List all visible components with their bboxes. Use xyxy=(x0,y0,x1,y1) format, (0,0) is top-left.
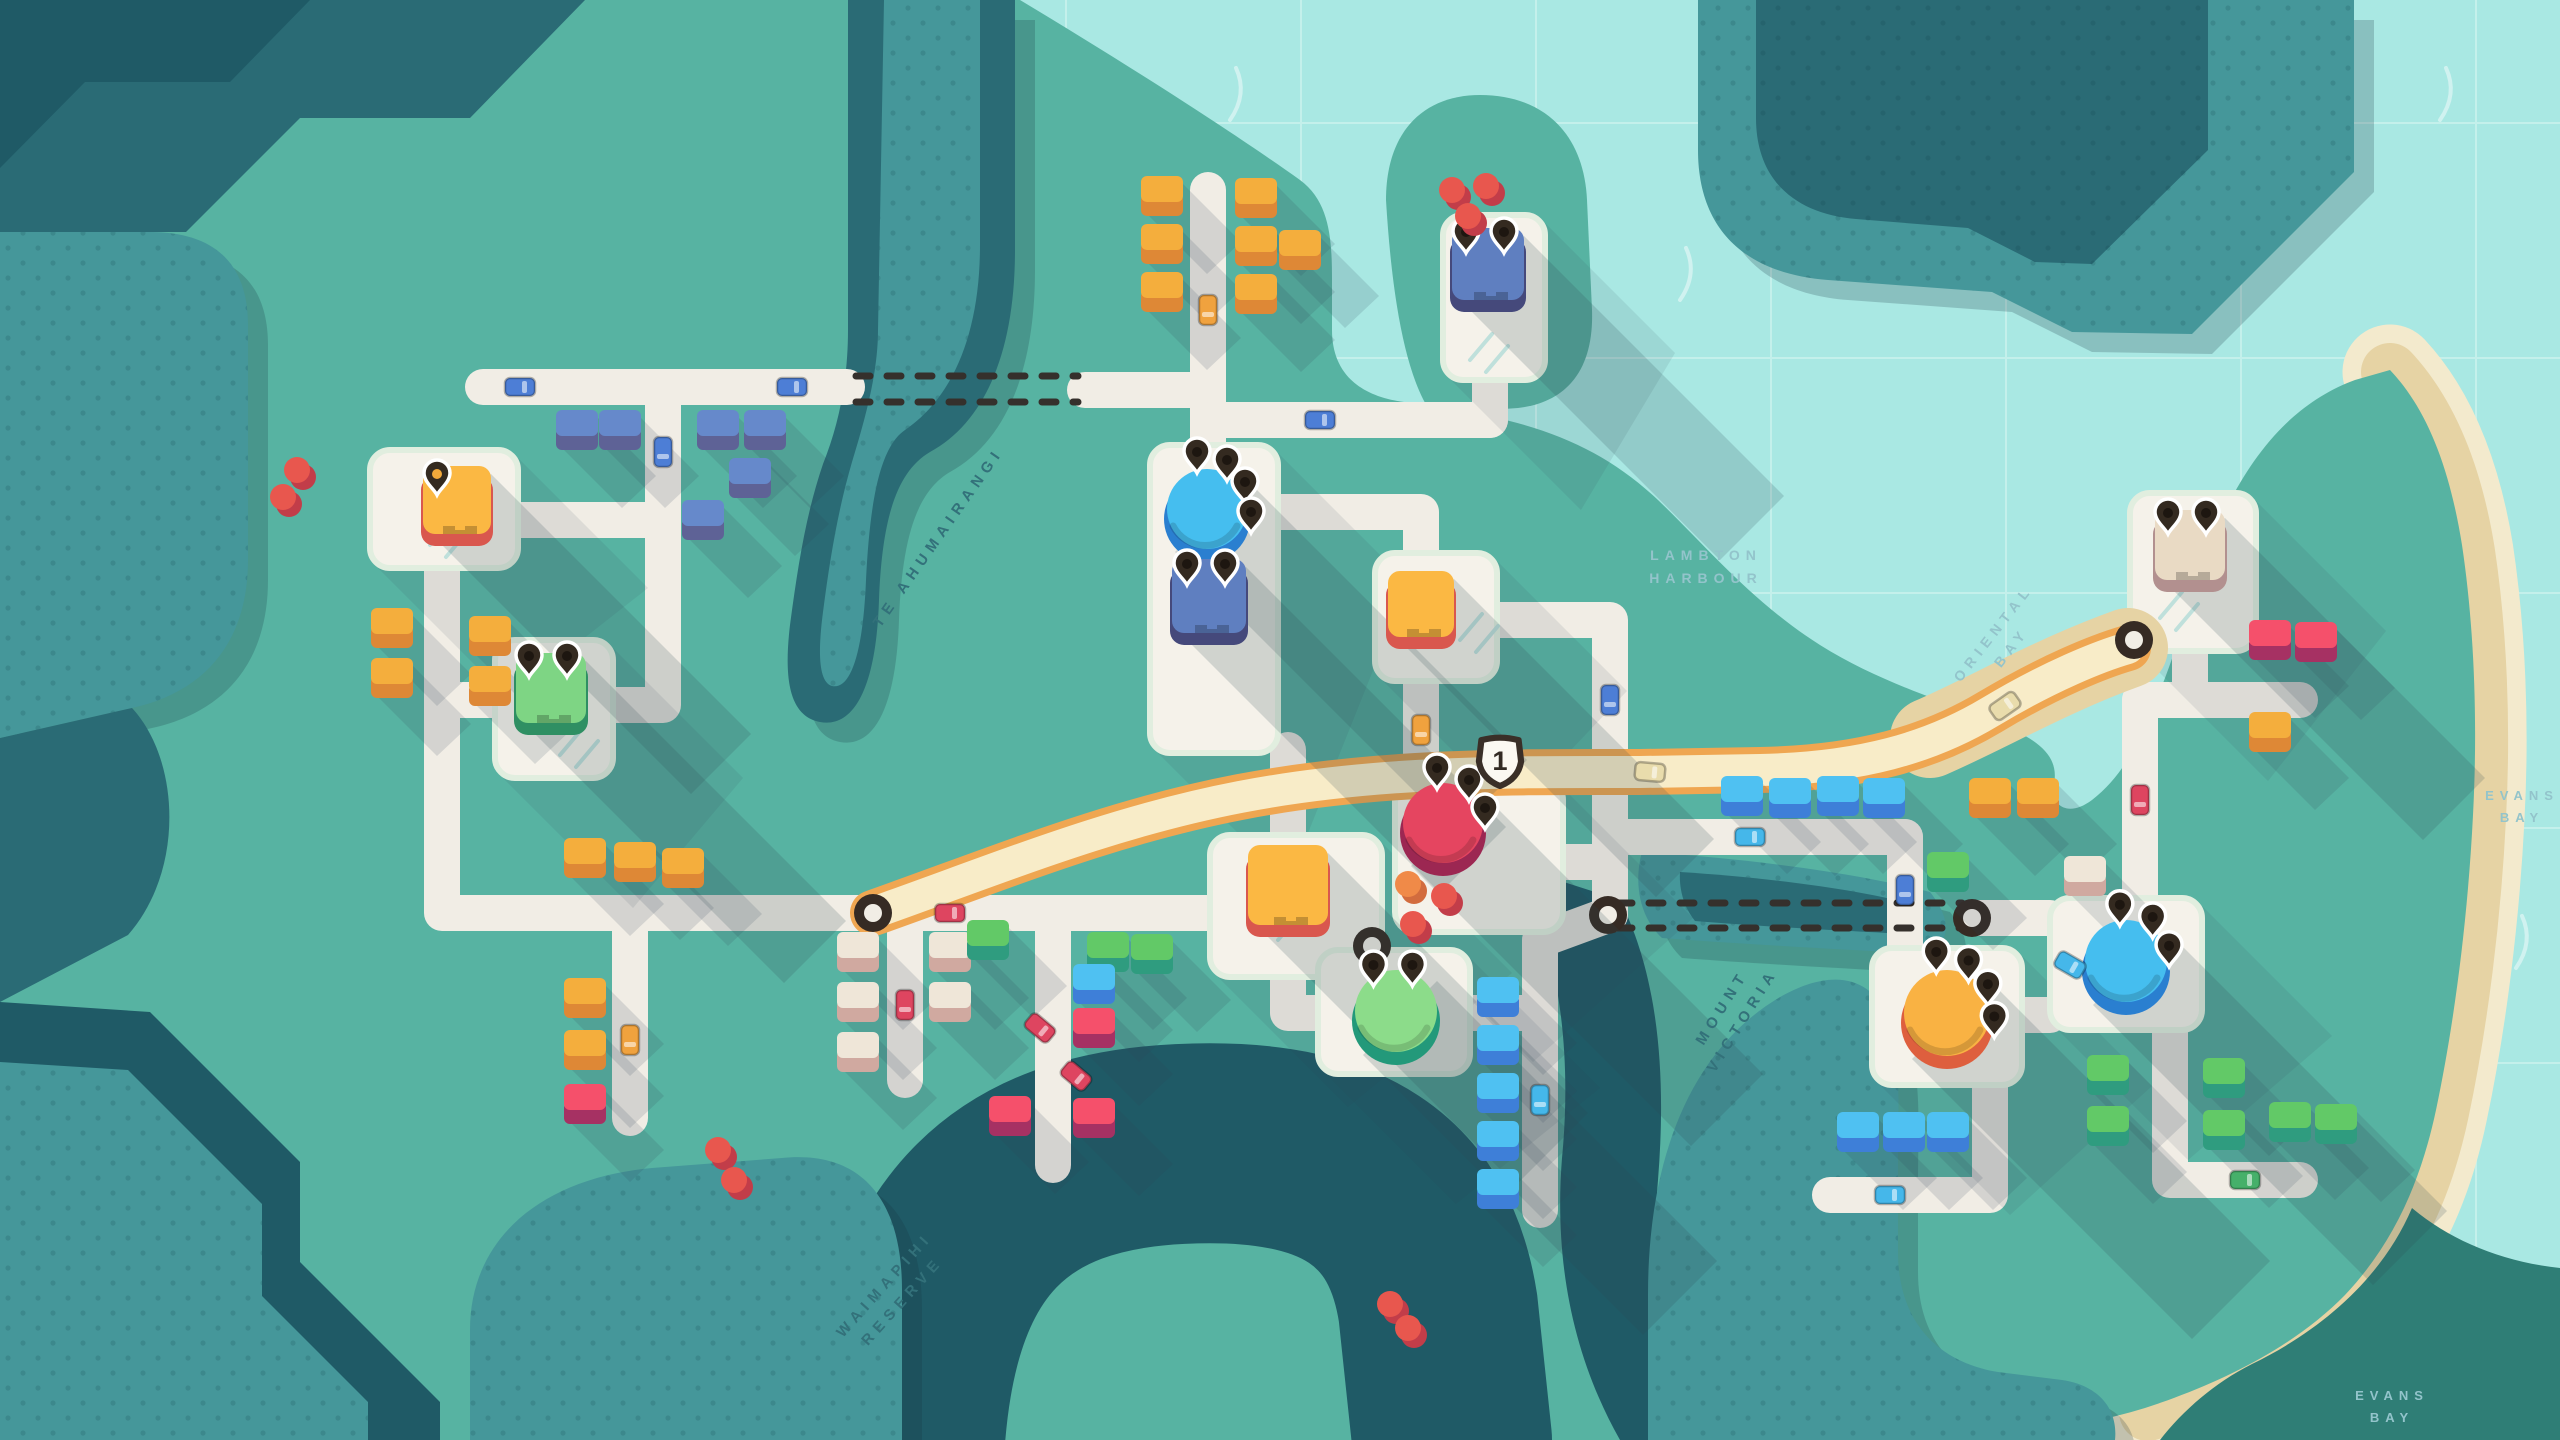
house-blue xyxy=(697,410,739,450)
house-blue xyxy=(599,410,641,450)
car-orange xyxy=(1199,295,1217,325)
portal-ring-center xyxy=(2125,631,2143,649)
car-blue xyxy=(1896,875,1914,905)
house-orange xyxy=(614,842,656,882)
house-orange xyxy=(564,838,606,878)
house-cyan xyxy=(1477,1073,1519,1113)
house-cyan xyxy=(1883,1112,1925,1152)
house-red xyxy=(2295,622,2337,662)
map-label-text: HARBOUR xyxy=(1649,570,1763,586)
house-green xyxy=(2087,1055,2129,1095)
map-label-text: BAY xyxy=(2370,1410,2414,1425)
car-orange xyxy=(1412,715,1430,745)
house-cyan xyxy=(1477,977,1519,1017)
destination-building-blue xyxy=(1170,550,1248,645)
house-orange xyxy=(1141,176,1183,216)
house-green xyxy=(2087,1106,2129,1146)
house-green xyxy=(1927,852,1969,892)
destination-building-green xyxy=(514,642,588,735)
house-red xyxy=(1073,1098,1115,1138)
house-green xyxy=(1131,934,1173,974)
house-red xyxy=(564,1084,606,1124)
car-blue xyxy=(777,378,807,396)
car-green xyxy=(2230,1171,2260,1189)
house-green xyxy=(2315,1104,2357,1144)
car-blue xyxy=(1305,411,1335,429)
house-red xyxy=(2249,620,2291,660)
car-red xyxy=(2131,785,2149,815)
house-cyan xyxy=(1769,778,1811,818)
car-cyan xyxy=(1531,1085,1549,1115)
portal-ring-center xyxy=(864,904,882,922)
house-orange xyxy=(1141,224,1183,264)
house-cyan xyxy=(1837,1112,1879,1152)
house-blue xyxy=(682,500,724,540)
house-orange xyxy=(1279,230,1321,270)
house-green xyxy=(2203,1110,2245,1150)
motorway-badge-group: 1 xyxy=(1479,738,1521,786)
house-blue xyxy=(556,410,598,450)
house-cyan xyxy=(1073,964,1115,1004)
house-cyan xyxy=(1927,1112,1969,1152)
car-cyan xyxy=(1735,828,1765,846)
house-orange xyxy=(371,658,413,698)
car-blue xyxy=(505,378,535,396)
house-orange xyxy=(2017,778,2059,818)
house-cyan xyxy=(1817,776,1859,816)
house-green xyxy=(2203,1058,2245,1098)
house-blue xyxy=(729,458,771,498)
house-beige xyxy=(2064,856,2106,896)
house-cyan xyxy=(1477,1169,1519,1209)
car-cyan xyxy=(1875,1186,1905,1204)
house-blue xyxy=(744,410,786,450)
house-beige xyxy=(837,982,879,1022)
house-cyan xyxy=(1477,1121,1519,1161)
motorway-badge: 1 xyxy=(1479,738,1521,786)
house-orange xyxy=(1235,226,1277,266)
house-orange xyxy=(1235,178,1277,218)
house-green xyxy=(2269,1102,2311,1142)
car-sand xyxy=(1634,762,1665,783)
house-orange xyxy=(469,616,511,656)
car-orange xyxy=(621,1025,639,1055)
house-green xyxy=(967,920,1009,960)
house-orange xyxy=(1235,274,1277,314)
destination-building-beige xyxy=(2153,499,2227,592)
house-beige xyxy=(929,932,971,972)
house-orange xyxy=(1969,778,2011,818)
destination-building-orange xyxy=(1246,845,1330,937)
map-label-text: LAMBTON xyxy=(1650,547,1762,563)
house-beige xyxy=(837,932,879,972)
house-orange xyxy=(371,608,413,648)
house-orange xyxy=(662,848,704,888)
destination-building-orange xyxy=(421,460,493,546)
house-beige xyxy=(837,1032,879,1072)
house-orange xyxy=(1141,272,1183,312)
motorway-badge-number: 1 xyxy=(1492,745,1507,776)
house-red xyxy=(1073,1008,1115,1048)
house-cyan xyxy=(1863,778,1905,818)
house-orange xyxy=(2249,712,2291,752)
house-cyan xyxy=(1477,1025,1519,1065)
car-red xyxy=(896,990,914,1020)
house-red xyxy=(989,1096,1031,1136)
house-cyan xyxy=(1721,776,1763,816)
house-orange xyxy=(564,1030,606,1070)
map-label-text: BAY xyxy=(2500,810,2544,825)
map-label-text: EVANS xyxy=(2355,1388,2429,1403)
car-blue xyxy=(654,437,672,467)
house-beige xyxy=(929,982,971,1022)
west-hill-texture xyxy=(0,232,248,738)
car-red xyxy=(935,904,965,922)
game-viewport: 1 LAMBTONHARBOURORIENTALBAYMOUNTVICTORIA… xyxy=(0,0,2560,1440)
house-orange xyxy=(564,978,606,1018)
city-map-canvas[interactable]: 1 LAMBTONHARBOURORIENTALBAYMOUNTVICTORIA… xyxy=(0,0,2560,1440)
house-orange xyxy=(469,666,511,706)
destination-building-orange xyxy=(1386,571,1456,649)
map-label-text: EVANS xyxy=(2485,788,2559,803)
car-blue xyxy=(1601,685,1619,715)
destination-building-blue xyxy=(1450,218,1526,312)
